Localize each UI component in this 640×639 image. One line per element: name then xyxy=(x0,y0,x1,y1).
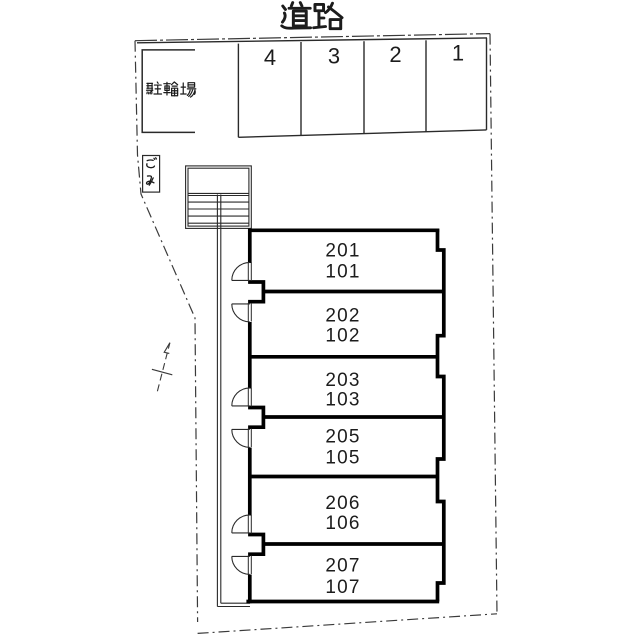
svg-text:107: 107 xyxy=(325,577,360,598)
svg-text:106: 106 xyxy=(325,513,360,534)
svg-text:1: 1 xyxy=(452,40,464,65)
svg-text:101: 101 xyxy=(325,261,360,282)
svg-text:206: 206 xyxy=(325,493,360,514)
svg-text:2: 2 xyxy=(389,42,401,67)
svg-text:205: 205 xyxy=(325,427,360,448)
svg-text:105: 105 xyxy=(325,448,360,469)
svg-text:102: 102 xyxy=(325,326,360,347)
svg-text:201: 201 xyxy=(325,240,360,261)
svg-text:4: 4 xyxy=(264,45,276,70)
svg-text:103: 103 xyxy=(325,390,360,411)
svg-text:3: 3 xyxy=(328,43,340,68)
svg-text:207: 207 xyxy=(325,556,360,577)
svg-text:203: 203 xyxy=(325,370,360,391)
svg-text:202: 202 xyxy=(325,306,360,327)
